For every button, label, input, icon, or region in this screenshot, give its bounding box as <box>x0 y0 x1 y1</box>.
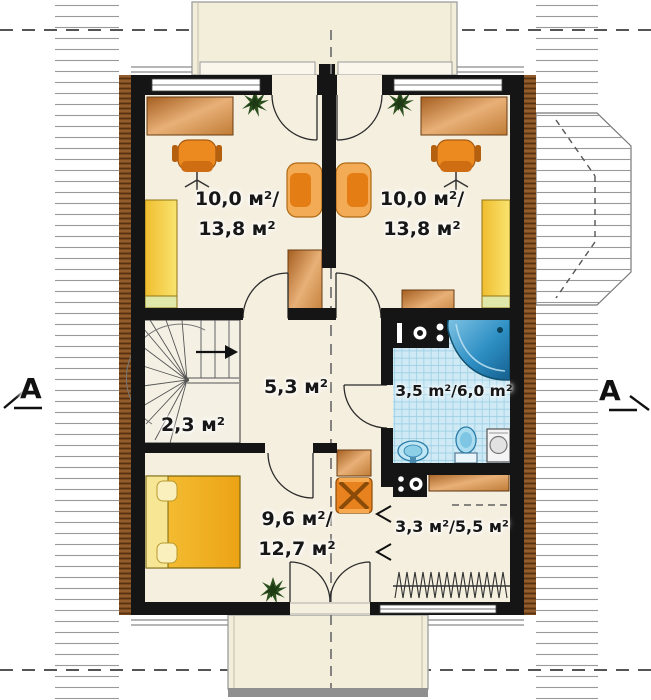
appliance-unit <box>393 472 427 497</box>
roof-left <box>55 0 119 700</box>
floor-plan-drawing <box>0 0 651 700</box>
desk <box>421 97 507 135</box>
small-table <box>337 450 371 476</box>
section-cut-symbol-right <box>609 396 649 410</box>
trim-left <box>119 75 131 615</box>
dormer-top <box>192 2 457 75</box>
trim-right <box>524 75 536 615</box>
corridor-furniture <box>336 450 372 513</box>
wardrobe <box>145 200 177 308</box>
roof-right <box>536 0 598 700</box>
vanity-counter <box>393 318 449 348</box>
toilet <box>455 427 477 463</box>
side-desk <box>288 250 322 318</box>
shelf <box>429 473 509 491</box>
dormer-bottom <box>228 615 428 697</box>
bathroom-area <box>393 318 510 463</box>
washing-machine <box>487 429 510 462</box>
folding-chair <box>336 478 372 513</box>
wardrobe <box>482 200 510 308</box>
desk <box>147 97 233 135</box>
armchair <box>287 163 322 217</box>
section-cut-symbol-left <box>4 392 42 408</box>
floor-plan: 10,0 м²/ 13,8 м² 10,0 м²/ 13,8 м² 5,3 м²… <box>0 0 651 700</box>
bay-window-roof <box>536 113 631 305</box>
armchair <box>336 163 371 217</box>
bed <box>146 476 240 568</box>
